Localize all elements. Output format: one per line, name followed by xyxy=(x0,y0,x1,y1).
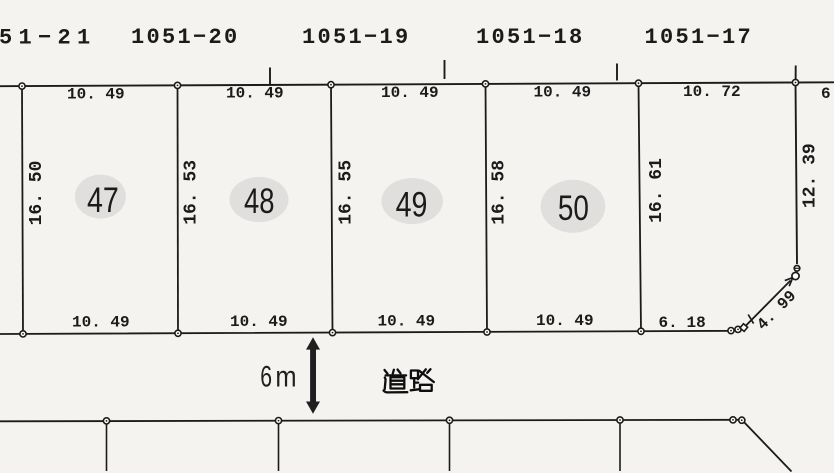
svg-text:48: 48 xyxy=(244,182,275,221)
svg-text:10. 49: 10. 49 xyxy=(226,85,284,103)
svg-text:1051−20: 1051−20 xyxy=(131,25,240,50)
svg-text:16. 53: 16. 53 xyxy=(182,160,202,225)
svg-text:47: 47 xyxy=(87,181,119,220)
svg-text:6.: 6. xyxy=(659,314,678,332)
svg-text:6: 6 xyxy=(260,360,272,393)
svg-text:m: m xyxy=(275,360,296,393)
svg-text:16. 50: 16. 50 xyxy=(27,161,47,226)
svg-text:6.: 6. xyxy=(821,85,834,103)
svg-text:10. 49: 10. 49 xyxy=(536,312,594,330)
svg-text:10. 72: 10. 72 xyxy=(683,83,741,101)
svg-text:12. 39: 12. 39 xyxy=(801,143,821,208)
svg-text:16. 58: 16. 58 xyxy=(490,160,510,225)
svg-text:1051−17: 1051−17 xyxy=(645,25,754,50)
svg-text:10. 49: 10. 49 xyxy=(381,84,439,102)
svg-text:51−21: 51−21 xyxy=(0,26,97,51)
svg-text:10. 49: 10. 49 xyxy=(230,313,288,331)
svg-text:50: 50 xyxy=(558,189,589,228)
svg-text:49: 49 xyxy=(396,186,428,225)
svg-text:16. 55: 16. 55 xyxy=(337,160,357,225)
svg-text:1051−18: 1051−18 xyxy=(476,25,585,50)
svg-text:10. 49: 10. 49 xyxy=(534,84,592,102)
svg-text:16. 61: 16. 61 xyxy=(647,158,667,223)
svg-text:10. 49: 10. 49 xyxy=(72,314,130,332)
svg-text:10. 49: 10. 49 xyxy=(378,313,436,331)
svg-text:18: 18 xyxy=(687,314,706,332)
svg-text:10. 49: 10. 49 xyxy=(67,86,125,104)
svg-text:1051−19: 1051−19 xyxy=(302,25,411,50)
